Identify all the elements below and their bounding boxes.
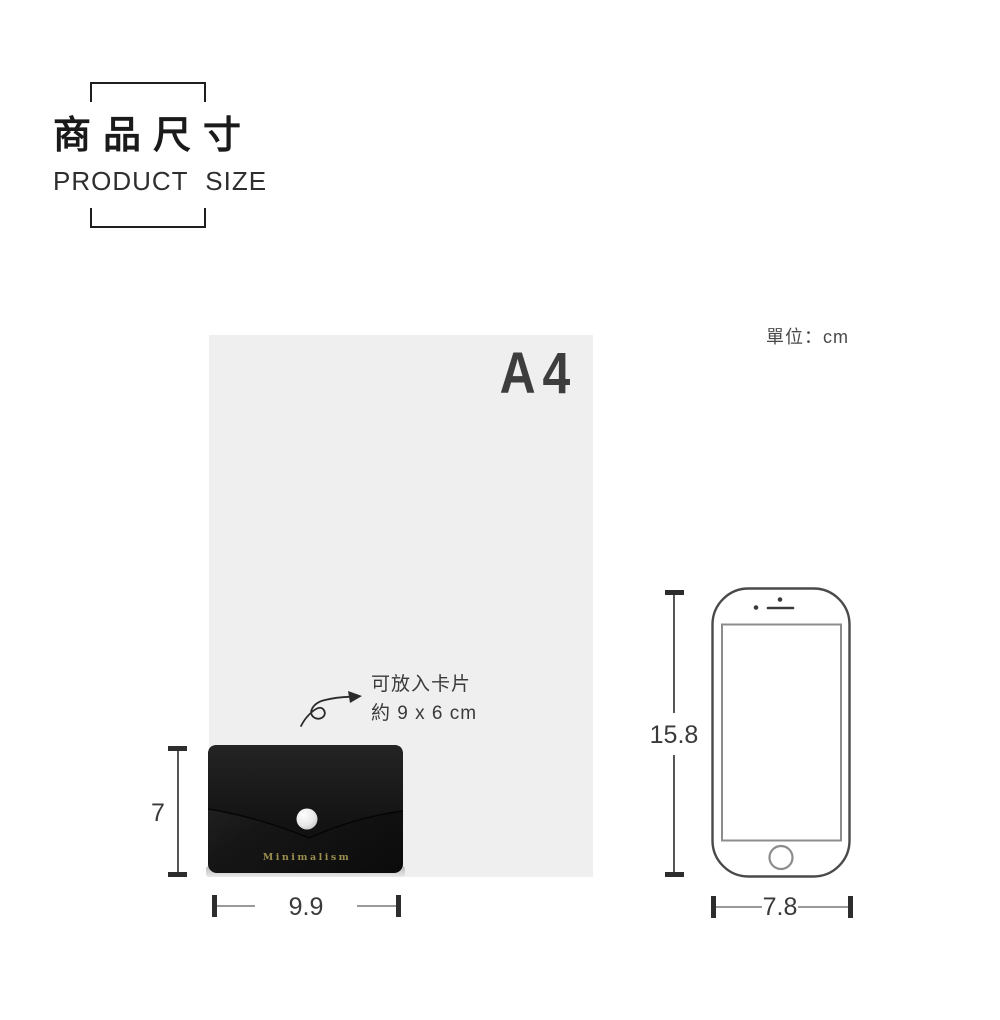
product-size-infographic: 商品尺寸 PRODUCT SIZE 單位：cm A4 可放入卡片 約 9 x 6… bbox=[0, 0, 1000, 1020]
dim-line bbox=[217, 905, 255, 907]
card-note-line2: 約 9 x 6 cm bbox=[371, 699, 477, 728]
page-title-zh: 商品尺寸 bbox=[53, 114, 253, 160]
arrowhead bbox=[348, 691, 362, 703]
sensor-dot-icon bbox=[778, 597, 783, 602]
dim-line bbox=[177, 751, 179, 872]
dim-phone-height-value: 15.8 bbox=[649, 721, 699, 750]
dim-line bbox=[673, 755, 675, 872]
unit-label: 單位：cm bbox=[766, 323, 849, 349]
curved-arrow-icon bbox=[292, 688, 367, 730]
card-note-line1: 可放入卡片 bbox=[371, 670, 477, 699]
title-frame-bottom-bracket bbox=[90, 208, 206, 228]
dim-cap bbox=[848, 896, 853, 918]
dim-cap bbox=[396, 895, 401, 917]
phone-outline bbox=[711, 587, 851, 878]
dim-cap bbox=[665, 872, 684, 877]
phone-screen bbox=[722, 625, 841, 841]
dim-wallet-width-value: 9.9 bbox=[276, 893, 336, 922]
dim-wallet-height-value: 7 bbox=[146, 799, 170, 828]
dim-line bbox=[798, 906, 848, 908]
card-capacity-note: 可放入卡片 約 9 x 6 cm bbox=[371, 670, 477, 728]
camera-icon bbox=[754, 605, 759, 610]
dim-line bbox=[673, 595, 675, 713]
wallet-brand-label: Minimalism bbox=[263, 852, 351, 863]
a4-label: A4 bbox=[499, 345, 577, 403]
snap-button bbox=[297, 809, 318, 830]
wallet-image: Minimalism bbox=[208, 745, 403, 875]
dim-cap bbox=[168, 872, 187, 877]
title-frame-top-bracket bbox=[90, 82, 206, 102]
dim-line bbox=[357, 905, 396, 907]
page-title-en: PRODUCT SIZE bbox=[53, 166, 267, 197]
home-button-icon bbox=[770, 846, 793, 869]
